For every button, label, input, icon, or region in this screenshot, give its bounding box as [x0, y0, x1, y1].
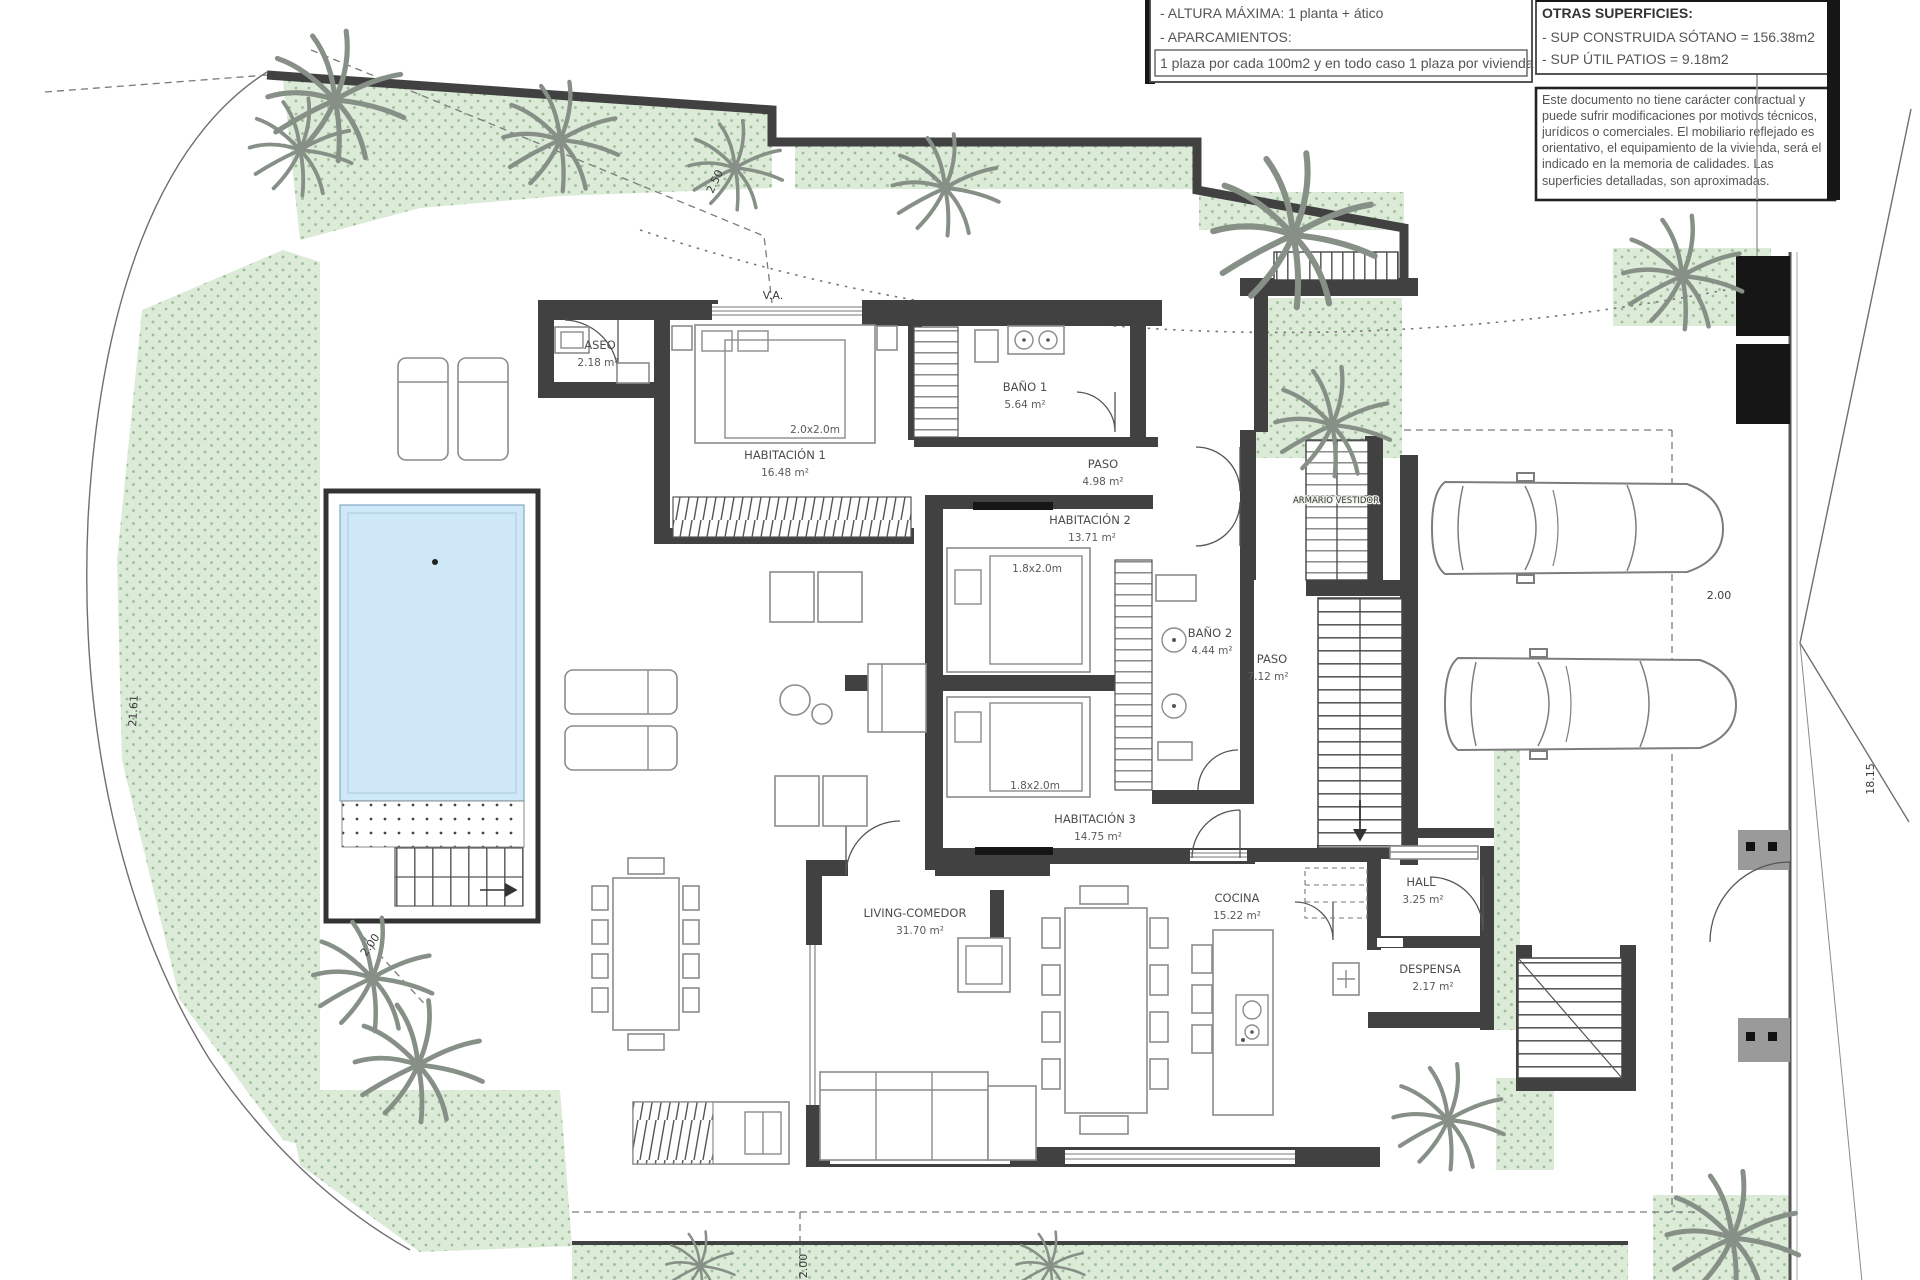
pool	[326, 491, 538, 921]
closet-hab1-bano1	[914, 327, 958, 437]
bed2-dim: 1.8x2.0m	[1012, 563, 1062, 575]
surfaces-title: OTRAS SUPERFICIES:	[1542, 5, 1693, 21]
dim-driveway: 2.00	[1707, 589, 1732, 602]
gate-leaf-top	[1736, 256, 1790, 336]
car-1	[1432, 473, 1723, 583]
dim-left-boundary: 21.61	[126, 695, 141, 727]
room-area-despensa: 2.17 m²	[1412, 981, 1453, 993]
room-area-habitacion1: 16.48 m²	[761, 467, 809, 479]
room-label-bano2: BAÑO 2	[1188, 625, 1232, 640]
outdoor-kitchen-counter	[633, 1102, 789, 1164]
title-block-right-bar	[1827, 0, 1840, 200]
room-label-paso2: PASO	[1257, 652, 1287, 666]
disclaimer-text: Este documento no tiene carácter contrac…	[1542, 92, 1832, 189]
room-area-habitacion2: 13.71 m²	[1068, 532, 1116, 544]
sliding-door-hab2	[973, 502, 1053, 510]
bed1-dim: 2.0x2.0m	[790, 424, 840, 436]
surfaces-line2: - SUP ÚTIL PATIOS = 9.18m2	[1542, 51, 1729, 67]
room-area-hall: 3.25 m²	[1402, 894, 1443, 906]
room-label-cocina: COCINA	[1215, 891, 1260, 905]
room-label-bano1: BAÑO 1	[1003, 379, 1047, 394]
room-area-paso2: 7.12 m²	[1247, 671, 1288, 683]
utility-box-upper	[1738, 830, 1790, 870]
room-label-habitacion3: HABITACIÓN 3	[1054, 811, 1136, 826]
utility-box-lower	[1738, 1018, 1790, 1062]
room-area-bano2: 4.44 m²	[1191, 645, 1232, 657]
params-line1: - ALTURA MÁXIMA: 1 planta + ático	[1160, 5, 1384, 21]
car-2	[1445, 649, 1736, 759]
dim-right-boundary: 18.15	[1864, 763, 1877, 795]
exterior-steps	[1274, 252, 1398, 280]
room-area-cocina: 15.22 m²	[1213, 910, 1261, 922]
room-area-living: 31.70 m²	[896, 925, 944, 937]
room-label-despensa: DESPENSA	[1399, 962, 1461, 976]
room-label-aseo: ASEO	[584, 338, 616, 352]
surfaces-line1: - SUP CONSTRUIDA SÓTANO = 156.38m2	[1542, 29, 1815, 45]
room-label-living: LIVING-COMEDOR	[864, 906, 967, 920]
room-label-hall: HALL	[1406, 875, 1436, 889]
sliding-door-hab3	[975, 847, 1053, 855]
room-label-habitacion2: HABITACIÓN 2	[1049, 512, 1131, 527]
title-block: - ALTURA MÁXIMA: 1 planta + ático - APAR…	[1145, 0, 1840, 200]
room-label-armario: ARMARIO VESTIDOR	[1293, 496, 1379, 506]
bed-1	[672, 325, 897, 443]
pool-water	[340, 505, 524, 801]
pedestrian-gate-door-arc	[1710, 862, 1790, 942]
shelves-bano2	[1115, 560, 1152, 790]
gate-leaf-bottom	[1736, 344, 1790, 424]
room-area-paso1: 4.98 m²	[1082, 476, 1123, 488]
room-area-habitacion3: 14.75 m²	[1074, 831, 1122, 843]
room-label-habitacion1: HABITACIÓN 1	[744, 447, 826, 462]
room-area-aseo: 2.18 m²	[577, 357, 618, 369]
dim-bottom-offset: 2.00	[797, 1254, 810, 1279]
room-label-paso1: PASO	[1088, 457, 1118, 471]
params-boxed-line: 1 plaza por cada 100m2 y en todo caso 1 …	[1160, 55, 1534, 71]
site-plan-svg: ASEO 2.18 m² 2.0x2.0m HABITACIÓN 1 16.48…	[0, 0, 1920, 1280]
bed3-dim: 1.8x2.0m	[1010, 780, 1060, 792]
closet-hab1	[673, 497, 911, 537]
params-line2: - APARCAMIENTOS:	[1160, 29, 1292, 45]
floor-plan-page: ASEO 2.18 m² 2.0x2.0m HABITACIÓN 1 16.48…	[0, 0, 1920, 1280]
pool-dotted-beach	[342, 801, 524, 847]
room-area-bano1: 5.64 m²	[1004, 399, 1045, 411]
terrace-table	[592, 858, 699, 1050]
va-annotation: V.A.	[763, 289, 783, 302]
